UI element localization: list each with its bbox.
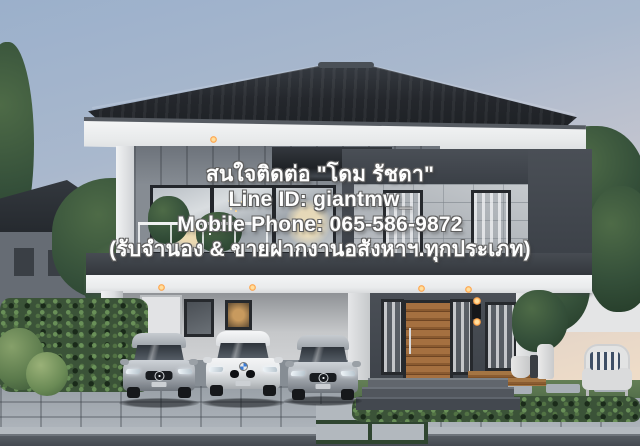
license-plate xyxy=(236,381,251,386)
headlight xyxy=(290,371,305,376)
carport-downlight xyxy=(158,284,165,291)
wheel xyxy=(210,385,223,396)
door-handle xyxy=(409,328,411,354)
wheel xyxy=(127,387,140,398)
watermark-line-id: Line ID: giantmw_ xyxy=(0,187,640,212)
white-bmw xyxy=(206,331,280,405)
car-body xyxy=(123,360,195,391)
dark-vase xyxy=(530,355,538,378)
door-sidelight-left xyxy=(384,302,401,372)
sconce-glow xyxy=(473,297,481,305)
headlight xyxy=(125,369,140,374)
bmw-kidney-grille xyxy=(246,370,255,378)
door-sidelight-right xyxy=(453,302,470,372)
entry-downlight xyxy=(465,286,472,293)
headlight xyxy=(340,371,355,376)
wheel xyxy=(263,385,276,396)
wheel xyxy=(178,387,191,398)
headlight xyxy=(208,367,223,372)
mercedes-grille xyxy=(146,371,173,380)
side-mirror xyxy=(352,361,361,367)
watermark-phone: Mobile Phone: 065-586-9872 xyxy=(0,212,640,237)
carport-window-lit xyxy=(228,303,249,327)
watermark-services: (รับจำนอง & ขายฝากงานอสังหาฯ.ทุกประเภท) xyxy=(0,237,640,262)
wicker-chair-seat xyxy=(582,368,632,390)
entry-downlight xyxy=(418,285,425,292)
tall-white-planter xyxy=(537,344,554,379)
stepping-slab xyxy=(546,384,580,393)
striped-pillow xyxy=(590,352,620,370)
bright-shrub xyxy=(26,352,68,396)
side-mirror xyxy=(203,357,212,363)
bmw-kidney-grille xyxy=(230,370,239,378)
silver-mercedes-left xyxy=(123,333,195,405)
mercedes-star-badge xyxy=(319,373,329,383)
wheel xyxy=(292,389,305,400)
car-shadow xyxy=(119,398,199,408)
eave-downlight xyxy=(210,136,217,143)
mercedes-star-badge xyxy=(155,371,165,381)
carport-downlight xyxy=(249,284,256,291)
watermark: สนใจติดต่อ "โดม รัชดา" Line ID: giantmw_… xyxy=(0,162,640,262)
mercedes-grille xyxy=(310,373,337,382)
bmw-roundel-badge xyxy=(239,362,248,371)
car-body xyxy=(288,362,358,393)
listing-photo: สนใจติดต่อ "โดม รัชดา" Line ID: giantmw_… xyxy=(0,0,640,446)
wheel xyxy=(341,389,354,400)
roof-ridge-cap xyxy=(318,62,374,68)
silver-mercedes-right xyxy=(288,335,358,403)
license-plate xyxy=(316,384,331,389)
side-mirror xyxy=(120,359,129,365)
side-mirror xyxy=(274,357,283,363)
car-shadow xyxy=(202,398,284,408)
white-pot xyxy=(511,356,531,378)
headlight xyxy=(262,367,277,372)
entrance-step xyxy=(356,397,520,410)
car-body xyxy=(206,358,280,389)
side-mirror xyxy=(285,361,294,367)
sconce-glow xyxy=(473,318,481,326)
side-mirror xyxy=(189,359,198,365)
watermark-contact-line: สนใจติดต่อ "โดม รัชดา" xyxy=(0,162,640,187)
carport-window xyxy=(187,302,211,334)
license-plate xyxy=(152,382,167,387)
wall-sconce xyxy=(472,304,481,319)
headlight xyxy=(177,369,192,374)
